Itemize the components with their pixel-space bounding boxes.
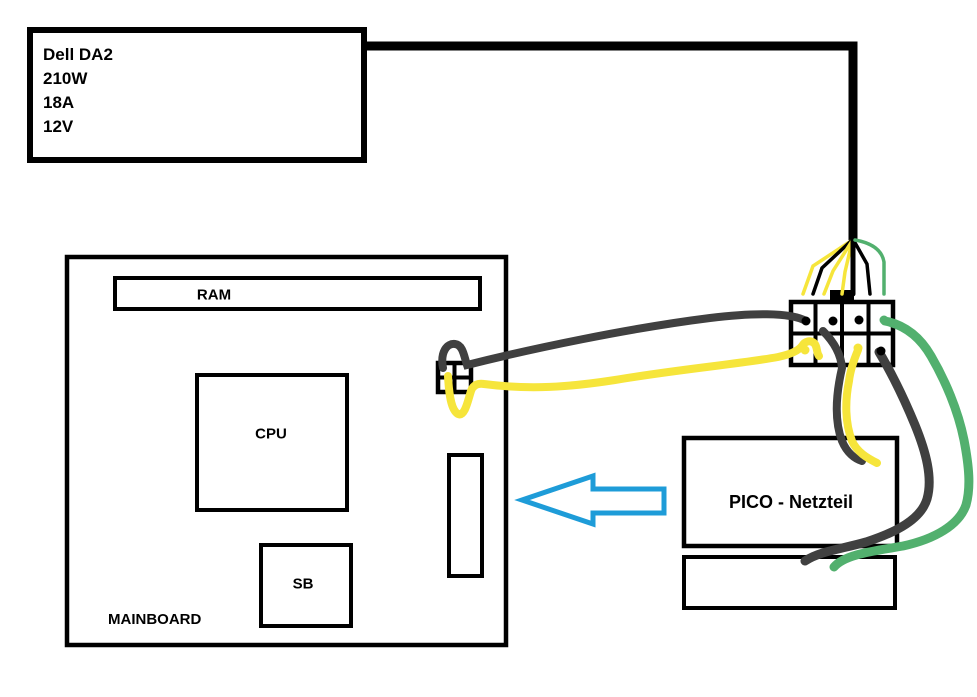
- pico-psu-label: PICO - Netzteil: [729, 493, 853, 511]
- pin-dot-black: [855, 316, 864, 325]
- direction-arrow-left: [522, 476, 664, 524]
- psu-label-volts: 12V: [43, 118, 73, 135]
- pin-dot-black: [829, 317, 838, 326]
- diagram-graphics: [0, 0, 977, 697]
- psu-dc-cable: [364, 46, 853, 240]
- pin-dot-green: [880, 316, 889, 325]
- pin-dot-yellow: [854, 344, 863, 353]
- psu-label-amps: 18A: [43, 94, 74, 111]
- pin-dot-yellow: [801, 346, 810, 355]
- ram-slot-box: [115, 278, 480, 309]
- psu-label-model: Dell DA2: [43, 46, 113, 63]
- wiring-diagram: Dell DA2 210W 18A 12V RAM CPU SB MAINBOA…: [0, 0, 977, 697]
- atx-socket-box: [449, 455, 482, 576]
- sb-label: SB: [293, 577, 314, 592]
- pico-psu-lower-box: [684, 557, 895, 608]
- fan-wire-black-3: [854, 241, 870, 294]
- cpu-label: CPU: [255, 427, 287, 442]
- pin-dot-black: [802, 317, 811, 326]
- mainboard-label: MAINBOARD: [108, 612, 201, 627]
- ram-label: RAM: [197, 288, 231, 303]
- cpu-box: [197, 375, 347, 510]
- psu-label-watts: 210W: [43, 70, 87, 87]
- pin-dot-black: [877, 347, 886, 356]
